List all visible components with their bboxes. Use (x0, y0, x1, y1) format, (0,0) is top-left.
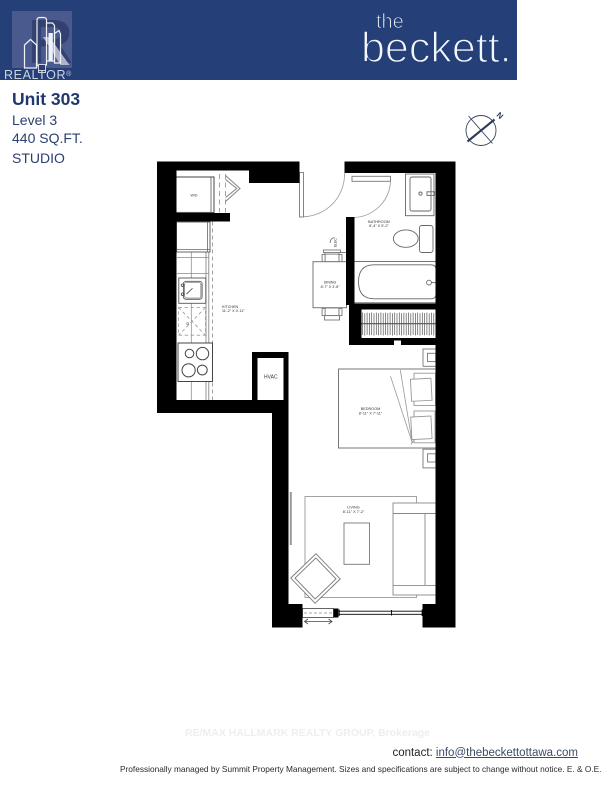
svg-text:BEDROOM: BEDROOM (361, 407, 381, 411)
svg-text:11'-2" X 4'-11": 11'-2" X 4'-11" (222, 309, 245, 313)
svg-text:8'-4" X 5'-2": 8'-4" X 5'-2" (369, 224, 389, 228)
svg-text:BATHROOM: BATHROOM (368, 220, 390, 224)
svg-text:DINING: DINING (324, 281, 337, 285)
svg-text:ELEC: ELEC (334, 238, 338, 247)
svg-text:W/D: W/D (191, 193, 198, 197)
svg-text:8'-7" X 3'-8": 8'-7" X 3'-8" (321, 285, 340, 289)
svg-text:HVAC: HVAC (264, 374, 278, 380)
svg-text:8'-11" X 7'-11": 8'-11" X 7'-11" (359, 411, 383, 415)
svg-text:LIVING: LIVING (347, 506, 359, 510)
svg-text:8'-11" X 7'-2": 8'-11" X 7'-2" (343, 510, 365, 514)
